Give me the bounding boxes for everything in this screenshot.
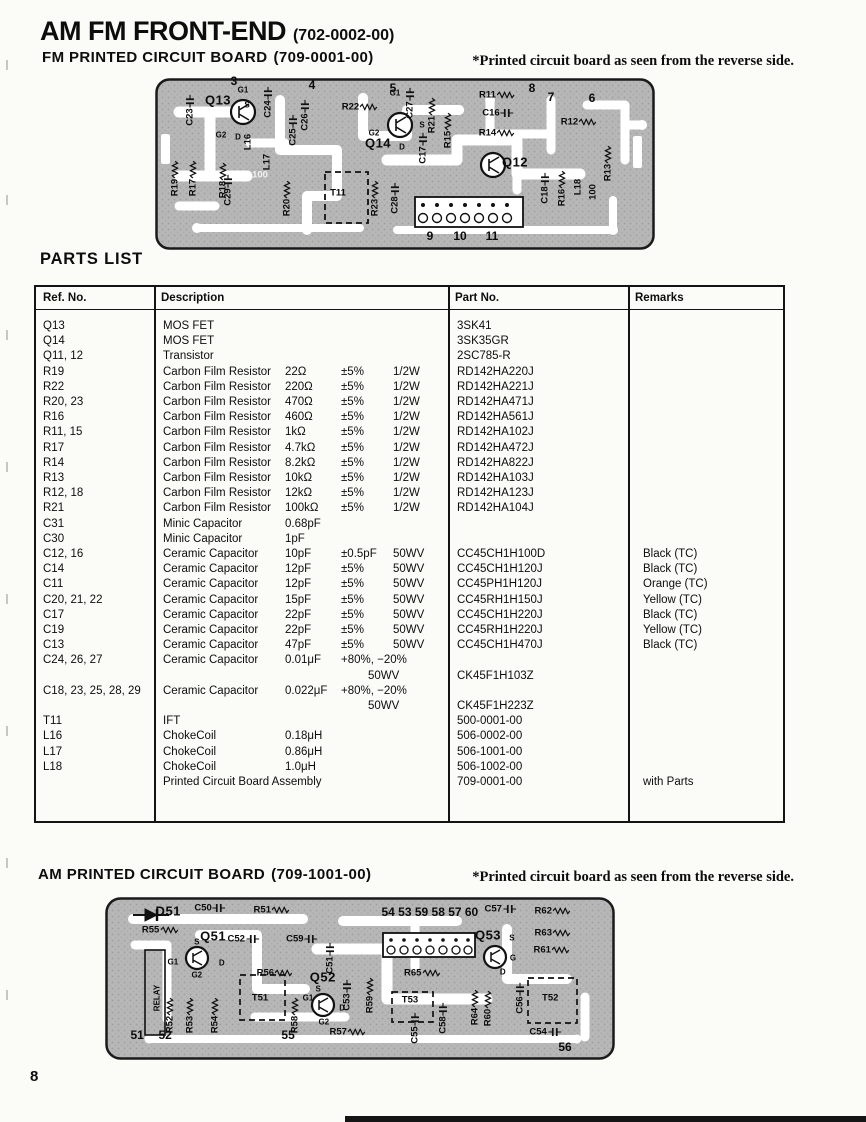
pcb-label-text: C57 [485, 904, 502, 915]
description-part: 22pF [285, 608, 341, 623]
description-part: Carbon Film Resistor [163, 365, 285, 380]
table-row: L18ChokeCoil1.0μH506-1002-00 [36, 760, 783, 775]
pcb-label-text: 100 [252, 170, 268, 181]
ref-no-cell: C14 [36, 562, 154, 577]
pcb-label-g1: G1 [303, 994, 314, 1003]
pcb-label-text: R12 [561, 117, 578, 128]
pcb-label-r60: R60 [483, 990, 494, 1026]
pcb-label-text: G2 [191, 971, 202, 980]
table-row: R20, 23Carbon Film Resistor470Ω±5%1/2WRD… [36, 395, 783, 410]
description-cell: Ceramic Capacitor12pF±5%50WV [154, 562, 448, 577]
description-part: Ceramic Capacitor [163, 562, 285, 577]
remarks-cell [628, 684, 787, 714]
description-part: Carbon Film Resistor [163, 501, 285, 516]
ref-no-cell: C18, 23, 25, 28, 29 [36, 684, 154, 714]
pcb-label-r63: R63 [535, 928, 571, 939]
pcb-label-text: 10 [453, 229, 466, 243]
part-no-cell: RD142HA471J [448, 395, 628, 410]
description-part: ±5% [341, 471, 393, 486]
description-part: 1/2W [393, 487, 420, 499]
pcb-label-r52: R52 [164, 997, 175, 1033]
connector-block [415, 197, 523, 227]
pcb-label-text: C54 [529, 1026, 546, 1037]
scan-artifact [6, 858, 8, 868]
table-row: R16Carbon Film Resistor460Ω±5%1/2WRD142H… [36, 410, 783, 425]
description-part: 220Ω [285, 380, 341, 395]
table-column-divider [628, 287, 630, 821]
pcb-label-l16: L16 [243, 134, 254, 150]
remarks-cell [628, 349, 787, 364]
ref-no-cell: R19 [36, 365, 154, 380]
pcb-label-6: 6 [589, 91, 596, 105]
pcb-label-g2: G2 [216, 130, 227, 139]
description-cell: ChokeCoil0.86μH [154, 745, 448, 760]
pcb-label-c50: C50 [194, 902, 225, 913]
description-cell: Carbon Film Resistor100kΩ±5%1/2W [154, 501, 448, 516]
pcb-label-s: S [419, 120, 424, 129]
pcb-label-text: D51 [156, 904, 181, 919]
pcb-label-text: R17 [188, 179, 199, 196]
table-row: R17Carbon Film Resistor4.7kΩ±5%1/2WRD142… [36, 441, 783, 456]
description-part: 50WV [393, 624, 424, 636]
ref-no-cell: R13 [36, 471, 154, 486]
part-no-cell: CC45CH1H120J [448, 562, 628, 577]
pcb-label-c17: C17 [418, 132, 429, 163]
ref-no-cell: C17 [36, 608, 154, 623]
pcb-label-text: T52 [542, 993, 558, 1004]
part-no-cell: CC45RH1H150J [448, 593, 628, 608]
description-part: IFT [163, 714, 285, 729]
pcb-label-l18: L18 [573, 179, 584, 195]
pcb-label-text: C25 [288, 128, 299, 145]
description-cell: MOS FET [154, 334, 448, 349]
description-part: 22pF [285, 623, 341, 638]
description-part: Ceramic Capacitor [163, 547, 285, 562]
scan-artifact [6, 990, 8, 1000]
ref-no-cell: R17 [36, 441, 154, 456]
pcb-label-text: G1 [390, 88, 401, 97]
pcb-label-r17: R17 [188, 160, 199, 196]
description-cell: Ceramic Capacitor22pF±5%50WV [154, 623, 448, 638]
pcb-label-r57: R57 [330, 1026, 366, 1037]
pcb-label-s: S [316, 984, 321, 993]
pcb-label-r55: R55 [142, 924, 178, 935]
remarks-cell: with Parts [628, 775, 787, 790]
pcb-label-text: R59 [365, 996, 376, 1013]
remarks-cell: Yellow (TC) [628, 623, 787, 638]
page-number: 8 [30, 1068, 38, 1085]
pcb-label-d: D [500, 967, 506, 976]
pcb-label-d: D [219, 959, 225, 968]
pcb-label-text: R13 [603, 164, 614, 181]
description-part: 1/2W [393, 396, 420, 408]
pcb-label-r64: R64 [469, 989, 480, 1025]
description-part: Carbon Film Resistor [163, 410, 285, 425]
pcb-label-text: R14 [479, 128, 496, 139]
description-part: 1pF [285, 532, 341, 547]
ref-no-cell: R22 [36, 380, 154, 395]
ref-no-cell: R14 [36, 456, 154, 471]
remarks-cell [628, 532, 787, 547]
description-part: 1.0μH [285, 760, 341, 775]
pcb-label-c25: C25 [288, 114, 299, 145]
pcb-label-text: C29 [223, 188, 234, 205]
pcb-label-4: 4 [309, 78, 316, 92]
description-part: +80%, −20% [341, 653, 393, 668]
part-no-cell: 506-0002-00 [448, 729, 628, 744]
pcb-label-g: G [510, 953, 516, 962]
description-part: ±5% [341, 425, 393, 440]
pcb-label-text: R56 [257, 967, 274, 978]
pcb-label-text: C24 [263, 100, 274, 117]
description-part: Carbon Film Resistor [163, 471, 285, 486]
pcb-label-text: C50 [194, 902, 211, 913]
table-row: C19Ceramic Capacitor22pF±5%50WVCC45RH1H2… [36, 623, 783, 638]
pcb-label-r23: R23 [370, 180, 381, 216]
am-subtitle: AM PRINTED CIRCUIT BOARD(709-1001-00) [38, 866, 371, 883]
description-part: 4.7kΩ [285, 441, 341, 456]
pcb-label-text: R64 [469, 1008, 480, 1025]
description-part: 0.022μF [285, 684, 341, 699]
pcb-label-r56: R56 [257, 967, 293, 978]
pcb-label-c53: C53 [342, 979, 353, 1010]
column-header-remarks: Remarks [628, 292, 787, 304]
part-no-cell: RD142HA102J [448, 425, 628, 440]
description-part: 1/2W [393, 411, 420, 423]
pcb-label-text: 9 [427, 229, 434, 243]
part-no-cell: 709-0001-00 [448, 775, 628, 790]
ref-no-cell: C20, 21, 22 [36, 593, 154, 608]
description-cell: Printed Circuit Board Assembly [154, 775, 448, 790]
remarks-cell [628, 395, 787, 410]
pcb-label-text: 11 [486, 229, 499, 243]
pcb-label-c56: C56 [515, 982, 526, 1013]
pcb-label-text: S [419, 120, 424, 129]
pcb-label-3: 3 [231, 74, 238, 88]
pcb-label-text: C56 [515, 996, 526, 1013]
description-cell: IFT [154, 714, 448, 729]
reverse-side-note-am: *Printed circuit board as seen from the … [472, 869, 794, 886]
scan-artifact [6, 594, 8, 604]
description-cell: Ceramic Capacitor10pF±0.5pF50WV [154, 547, 448, 562]
description-part: ±5% [341, 410, 393, 425]
pcb-label-q51: Q51 [200, 928, 226, 943]
pcb-label-7: 7 [548, 90, 555, 104]
pcb-label-r65: R65 [404, 967, 440, 978]
pcb-label-100: 100 [588, 184, 599, 200]
pcb-label-c18: C18 [540, 172, 551, 203]
remarks-cell [628, 760, 787, 775]
description-part: 0.68pF [285, 517, 341, 532]
ref-no-cell: C11 [36, 577, 154, 592]
description-part: 460Ω [285, 410, 341, 425]
remarks-cell [628, 425, 787, 440]
pcb-label-t53: T53 [402, 995, 418, 1006]
description-part: 1/2W [393, 442, 420, 454]
description-part: Ceramic Capacitor [163, 638, 285, 653]
pcb-label-56: 56 [558, 1040, 571, 1054]
pcb-label-text: Q53 [475, 927, 501, 942]
pcb-label-text: G [510, 953, 516, 962]
pcb-label-text: R61 [534, 944, 551, 955]
description-part: ±0.5pF [341, 547, 393, 562]
column-header-ref: Ref. No. [36, 292, 154, 304]
description-part: ±5% [341, 593, 393, 608]
description-part: ±5% [341, 577, 393, 592]
ref-no-cell: R20, 23 [36, 395, 154, 410]
description-part: ±5% [341, 608, 393, 623]
pcb-label-text: C55 [410, 1026, 421, 1043]
table-row: R11, 15Carbon Film Resistor1kΩ±5%1/2WRD1… [36, 425, 783, 440]
pcb-label-l17: L17 [262, 154, 273, 170]
description-cell: Ceramic Capacitor0.01μF+80%, −20%50WV [154, 653, 448, 683]
table-row: C13Ceramic Capacitor47pF±5%50WVCC45CH1H4… [36, 638, 783, 653]
parts-list-heading: PARTS LIST [40, 250, 143, 269]
description-cell: Ceramic Capacitor15pF±5%50WV [154, 593, 448, 608]
pcb-label-text: D [219, 959, 225, 968]
ref-no-cell: C30 [36, 532, 154, 547]
pcb-label-text: R16 [557, 189, 568, 206]
pcb-label-d: D [235, 132, 241, 141]
description-part: Ceramic Capacitor [163, 608, 285, 623]
description-part: 1/2W [393, 472, 420, 484]
description-part: 12pF [285, 562, 341, 577]
part-no-cell: CC45CH1H100D [448, 547, 628, 562]
am-pcb-diagram: D51Q51Q52Q5354 53 59 58 57 6051525556C50… [105, 897, 615, 1060]
pcb-label-text: S [194, 937, 199, 946]
pcb-label-text: R20 [282, 199, 293, 216]
description-part: Ceramic Capacitor [163, 593, 285, 608]
pcb-label-text: L17 [262, 154, 273, 170]
part-no-cell: CC45PH1H120J [448, 577, 628, 592]
part-no-cell: CK45F1H223Z [448, 684, 628, 714]
description-part: Carbon Film Resistor [163, 441, 285, 456]
description-part: Carbon Film Resistor [163, 456, 285, 471]
scan-artifact [6, 60, 8, 70]
description-part: Transistor [163, 349, 285, 364]
pcb-label-text: T53 [402, 995, 418, 1006]
pcb-label-text: 8 [529, 81, 536, 95]
part-no-cell: CC45CH1H220J [448, 608, 628, 623]
pcb-label-10: 10 [453, 229, 466, 243]
table-row: R14Carbon Film Resistor8.2kΩ±5%1/2WRD142… [36, 456, 783, 471]
pcb-label-text: D [500, 967, 506, 976]
remarks-cell [628, 745, 787, 760]
description-part: 1/2W [393, 502, 420, 514]
pcb-label-text: 54 53 59 58 57 60 [381, 905, 478, 919]
table-row: C14Ceramic Capacitor12pF±5%50WVCC45CH1H1… [36, 562, 783, 577]
table-row: Q13MOS FET3SK41 [36, 319, 783, 334]
pcb-label-r61: R61 [534, 944, 570, 955]
pcb-label-r19: R19 [170, 160, 181, 196]
description-part: 50WV [393, 639, 424, 651]
pcb-label-c16: C16 [482, 107, 513, 118]
table-row: R21Carbon Film Resistor100kΩ±5%1/2WRD142… [36, 501, 783, 516]
pcb-label-text: R57 [330, 1026, 347, 1037]
description-cell: Carbon Film Resistor22Ω±5%1/2W [154, 365, 448, 380]
ref-no-cell: C13 [36, 638, 154, 653]
table-row: Q11, 12Transistor2SC785-R [36, 349, 783, 364]
remarks-cell [628, 486, 787, 501]
pcb-label-text: RELAY [153, 985, 162, 1011]
part-no-cell [448, 517, 628, 532]
description-part: Ceramic Capacitor [163, 684, 285, 699]
table-row: T11IFT500-0001-00 [36, 714, 783, 729]
description-part: 470Ω [285, 395, 341, 410]
description-part: 50WV [393, 609, 424, 621]
fm-pcb-diagram: 34587691011Q13Q14Q12G1SG2DG1G2DSR22R11C1… [155, 78, 655, 250]
remarks-cell [628, 334, 787, 349]
pcb-label-relay: RELAY [153, 985, 162, 1011]
pcb-label-text: C27 [405, 101, 416, 118]
connector-block [383, 933, 475, 957]
description-part: ±5% [341, 380, 393, 395]
description-part: 50WV [393, 563, 424, 575]
table-row: C30Minic Capacitor1pF [36, 532, 783, 547]
remarks-cell [628, 501, 787, 516]
scan-artifact [6, 195, 8, 205]
description-cell: Carbon Film Resistor470Ω±5%1/2W [154, 395, 448, 410]
table-row: R13Carbon Film Resistor10kΩ±5%1/2WRD142H… [36, 471, 783, 486]
parts-table: Ref. No. Description Part No. Remarks Q1… [34, 285, 785, 823]
ref-no-cell: R12, 18 [36, 486, 154, 501]
description-part: ±5% [341, 456, 393, 471]
part-no-cell: RD142HA104J [448, 501, 628, 516]
ref-no-cell: R16 [36, 410, 154, 425]
part-no-cell: RD142HA561J [448, 410, 628, 425]
pcb-label-text: R65 [404, 967, 421, 978]
pcb-label-text: R22 [342, 102, 359, 113]
part-no-cell: RD142HA822J [448, 456, 628, 471]
description-cell: Minic Capacitor0.68pF [154, 517, 448, 532]
pcb-label-r12: R12 [561, 117, 597, 128]
description-part: Carbon Film Resistor [163, 395, 285, 410]
description-part: 50WV [393, 548, 424, 560]
pcb-label-c54: C54 [529, 1026, 560, 1037]
description-part: ±5% [341, 395, 393, 410]
description-part: 50WV [393, 594, 424, 606]
pcb-label-text: C53 [342, 993, 353, 1010]
description-part: Carbon Film Resistor [163, 425, 285, 440]
pcb-label-t52: T52 [542, 993, 558, 1004]
pcb-label-text: 4 [309, 78, 316, 92]
pcb-label-54-53-59-58-57-60: 54 53 59 58 57 60 [381, 905, 478, 919]
pcb-label-100: 100 [252, 170, 268, 181]
fm-subtitle-code: (709-0001-00) [273, 49, 373, 66]
pcb-label-text: T51 [252, 993, 268, 1004]
remarks-cell: Orange (TC) [628, 577, 787, 592]
description-part: Ceramic Capacitor [163, 623, 285, 638]
description-part: ±5% [341, 638, 393, 653]
description-part: 15pF [285, 593, 341, 608]
part-no-cell: RD142HA472J [448, 441, 628, 456]
pcb-label-d: D [399, 142, 405, 151]
pcb-label-text: G1 [238, 86, 249, 95]
pcb-label-r22: R22 [342, 102, 378, 113]
part-no-cell: 3SK41 [448, 319, 628, 334]
pcb-label-text: C28 [390, 196, 401, 213]
part-no-cell: CK45F1H103Z [448, 653, 628, 683]
remarks-cell [628, 729, 787, 744]
scan-artifact [6, 462, 8, 472]
table-row: C18, 23, 25, 28, 29Ceramic Capacitor0.02… [36, 684, 783, 714]
description-cell: Carbon Film Resistor8.2kΩ±5%1/2W [154, 456, 448, 471]
pcb-label-r58: R58 [290, 997, 301, 1033]
table-column-divider [154, 287, 156, 821]
pcb-label-r54: R54 [210, 997, 221, 1033]
pcb-label-text: R53 [185, 1016, 196, 1033]
scan-artifact [6, 726, 8, 736]
ref-no-cell: C12, 16 [36, 547, 154, 562]
pcb-label-text: R62 [535, 906, 552, 917]
pcb-label-51: 51 [130, 1028, 143, 1042]
pcb-label-s: S [244, 101, 249, 110]
pcb-label-text: Q13 [205, 93, 231, 108]
pcb-label-d51: D51 [156, 904, 181, 919]
pcb-label-9: 9 [427, 229, 434, 243]
pcb-label-text: R60 [483, 1009, 494, 1026]
ref-no-cell: C31 [36, 517, 154, 532]
description-part: 1kΩ [285, 425, 341, 440]
remarks-cell [628, 441, 787, 456]
page-title: AM FM FRONT-END(702-0002-00) [40, 16, 394, 47]
pcb-label-c57: C57 [485, 904, 516, 915]
table-row: C17Ceramic Capacitor22pF±5%50WVCC45CH1H2… [36, 608, 783, 623]
pcb-label-text: C58 [438, 1016, 449, 1033]
table-row: C11Ceramic Capacitor12pF±5%50WVCC45PH1H1… [36, 577, 783, 592]
reverse-side-note-fm: *Printed circuit board as seen from the … [472, 53, 794, 70]
pcb-label-text: C17 [418, 146, 429, 163]
pcb-label-text: C51 [324, 956, 335, 973]
pcb-label-text: D [399, 142, 405, 151]
pcb-label-text: R51 [254, 905, 271, 916]
pcb-label-text: D [235, 132, 241, 141]
description-part: Ceramic Capacitor [163, 653, 285, 668]
fm-subtitle: FM PRINTED CIRCUIT BOARD(709-0001-00) [42, 49, 374, 66]
description-cell: Carbon Film Resistor4.7kΩ±5%1/2W [154, 441, 448, 456]
description-cell: Carbon Film Resistor10kΩ±5%1/2W [154, 471, 448, 486]
description-part: ±5% [341, 562, 393, 577]
part-no-cell: RD142HA103J [448, 471, 628, 486]
ref-no-cell: T11 [36, 714, 154, 729]
description-part: 0.86μH [285, 745, 341, 760]
pcb-label-text: C59 [286, 934, 303, 945]
pcb-label-text: Q12 [502, 154, 528, 169]
scan-artifact [345, 1116, 866, 1122]
remarks-cell [628, 653, 787, 683]
description-part: Carbon Film Resistor [163, 380, 285, 395]
description-part: 1/2W [393, 381, 420, 393]
pcb-label-g2: G2 [369, 129, 380, 138]
description-cell: Ceramic Capacitor47pF±5%50WV [154, 638, 448, 653]
pcb-label-g1: G1 [238, 86, 249, 95]
pcb-label-q12: Q12 [502, 154, 528, 169]
pcb-label-c59: C59 [286, 934, 317, 945]
description-part: Minic Capacitor [163, 532, 285, 547]
description-part: 12pF [285, 577, 341, 592]
table-row: L16ChokeCoil0.18μH506-0002-00 [36, 729, 783, 744]
description-part: 1/2W [393, 457, 420, 469]
pcb-label-text: R15 [443, 131, 454, 148]
pcb-label-c29: C29 [223, 174, 234, 205]
pcb-label-r53: R53 [185, 997, 196, 1033]
pcb-label-text: 51 [130, 1028, 143, 1042]
fm-title-code: (702-0002-00) [293, 27, 394, 44]
pcb-label-c23: C23 [185, 94, 196, 125]
description-line2: 50WV [368, 699, 448, 714]
part-no-cell: RD142HA221J [448, 380, 628, 395]
pcb-label-t11: T11 [330, 188, 346, 199]
